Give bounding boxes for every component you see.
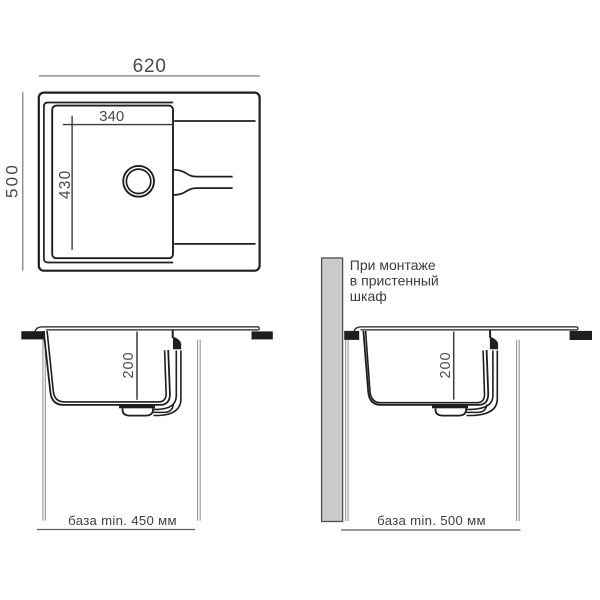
svg-text:200: 200: [438, 352, 454, 379]
svg-text:шкаф: шкаф: [350, 288, 387, 304]
svg-text:620: 620: [133, 56, 167, 77]
svg-text:430: 430: [57, 170, 74, 199]
svg-text:база min. 450 мм: база min. 450 мм: [68, 513, 177, 528]
svg-text:340: 340: [99, 108, 124, 125]
svg-text:500: 500: [3, 163, 22, 198]
svg-text:база min. 500 мм: база min. 500 мм: [377, 513, 486, 528]
svg-text:При монтаже: При монтаже: [350, 257, 436, 273]
svg-text:в пристенный: в пристенный: [350, 273, 439, 289]
svg-text:200: 200: [121, 352, 137, 379]
